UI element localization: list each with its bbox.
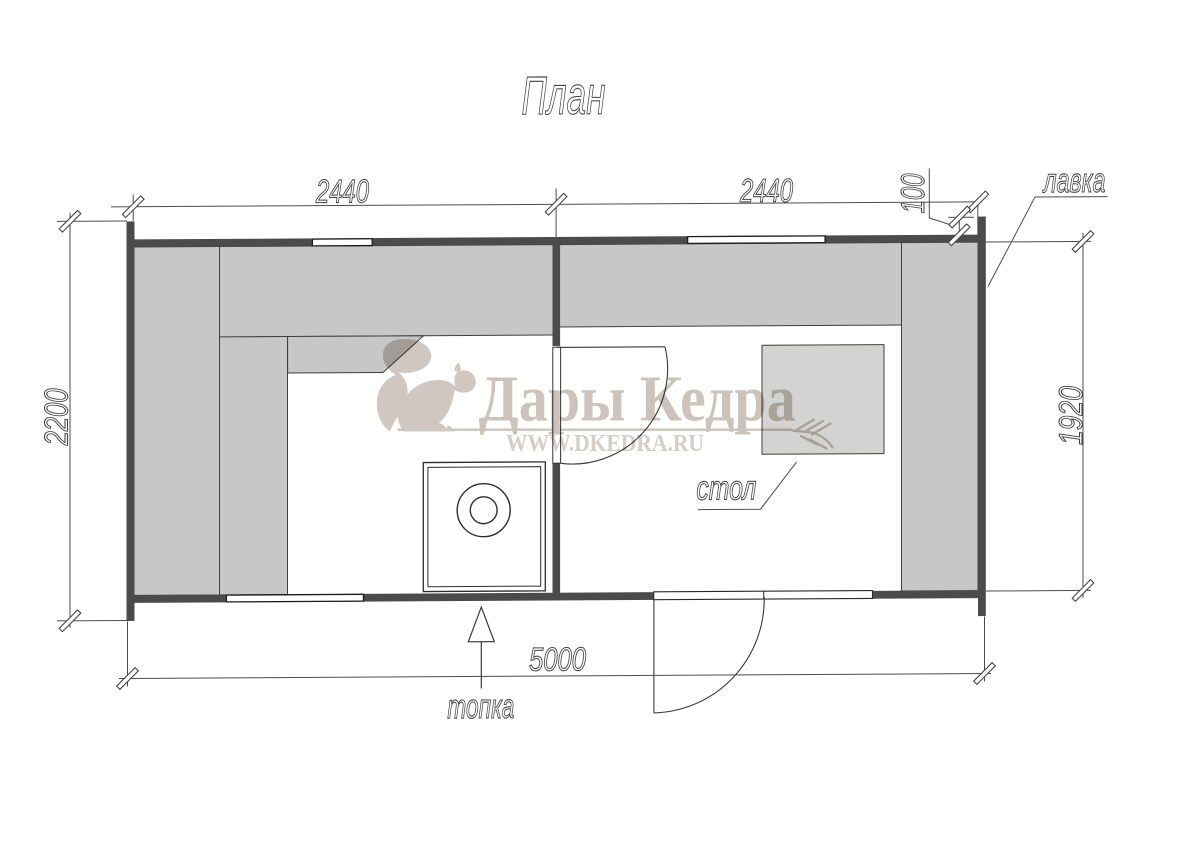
svg-text:лавка: лавка [1042,162,1105,200]
svg-text:5000: 5000 [529,640,586,677]
svg-text:2440: 2440 [315,172,369,209]
svg-text:1920: 1920 [1052,385,1089,445]
svg-text:2440: 2440 [739,172,793,209]
svg-text:Дары Кедра: Дары Кедра [479,363,796,436]
svg-text:100: 100 [894,173,931,214]
svg-text:стол: стол [696,469,756,507]
svg-text:WWW.DKEDRA.RU: WWW.DKEDRA.RU [506,430,704,457]
svg-text:План: План [522,66,606,126]
svg-text:2200: 2200 [38,388,75,446]
svg-text:топка: топка [447,688,514,726]
